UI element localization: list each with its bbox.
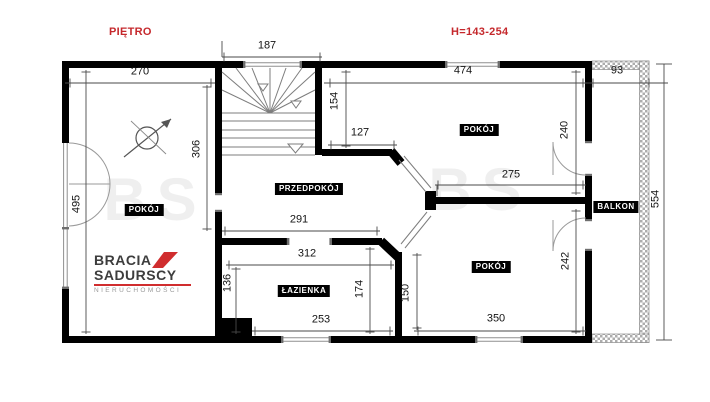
ceiling-height-note: H=143-254 <box>451 27 508 38</box>
dim-hall-width: 291 <box>290 215 308 226</box>
dim-bath-bottom-width: 253 <box>312 315 330 326</box>
chimney-block <box>218 318 252 336</box>
dim-stairs-width: 187 <box>258 41 276 52</box>
room-label-przedpokoj: PRZEDPOKÓJ <box>275 183 343 195</box>
logo-brand-line3: NIERUCHOMOŚCI <box>94 288 204 295</box>
door-arc <box>69 143 110 184</box>
logo-roof-icon <box>151 251 181 269</box>
floor-plan: BS BS <box>0 0 710 402</box>
dim-right-total-height: 554 <box>651 190 662 208</box>
logo-brand-line1: BRACIA <box>94 253 204 268</box>
dim-top-right-room-height: 240 <box>560 121 571 139</box>
room-label-pokoj-bottom-right: POKÓJ <box>472 261 511 273</box>
stair-direction-arrow <box>288 144 303 153</box>
logo-brand-line2: SADURSCY <box>94 268 204 283</box>
stair-direction-arrow <box>291 101 301 108</box>
door-arcs <box>69 142 586 251</box>
door-arc <box>553 218 586 251</box>
room-label-balkon: BALKON <box>593 201 638 213</box>
floor-title: PIĘTRO <box>109 27 152 38</box>
wall-junction <box>425 191 436 210</box>
room-label-pokoj-left: POKÓJ <box>125 204 164 216</box>
dim-bath-top-width: 312 <box>298 249 316 260</box>
staircase <box>222 68 315 155</box>
dim-balcony-width: 93 <box>611 66 623 77</box>
dim-top-right-room-width: 275 <box>502 170 520 181</box>
dim-left-room-height: 306 <box>192 140 203 158</box>
door-arc <box>553 142 586 175</box>
dim-stairs-height: 154 <box>330 92 341 110</box>
wall-chamfers <box>381 151 401 258</box>
dim-hall-top-width: 127 <box>351 128 369 139</box>
dim-left-room-width: 270 <box>131 67 149 78</box>
room-label-pokoj-top-right: POKÓJ <box>460 124 499 136</box>
dim-nook-height: 150 <box>401 284 412 302</box>
dim-top-right-width: 474 <box>454 66 472 77</box>
north-arrow-icon <box>124 119 171 157</box>
dimension-lines <box>65 41 672 340</box>
agency-logo: BRACIA SADURSCY NIERUCHOMOŚCI <box>94 253 204 295</box>
room-label-lazienka: ŁAZIENKA <box>278 285 330 297</box>
dim-bottom-right-height: 242 <box>561 252 572 270</box>
dim-bottom-right-width: 350 <box>487 314 505 325</box>
dim-bath-left-height: 136 <box>223 274 234 292</box>
dim-left-wall-height: 495 <box>72 195 83 213</box>
walls <box>62 61 592 343</box>
dim-bath-right-height: 174 <box>355 280 366 298</box>
